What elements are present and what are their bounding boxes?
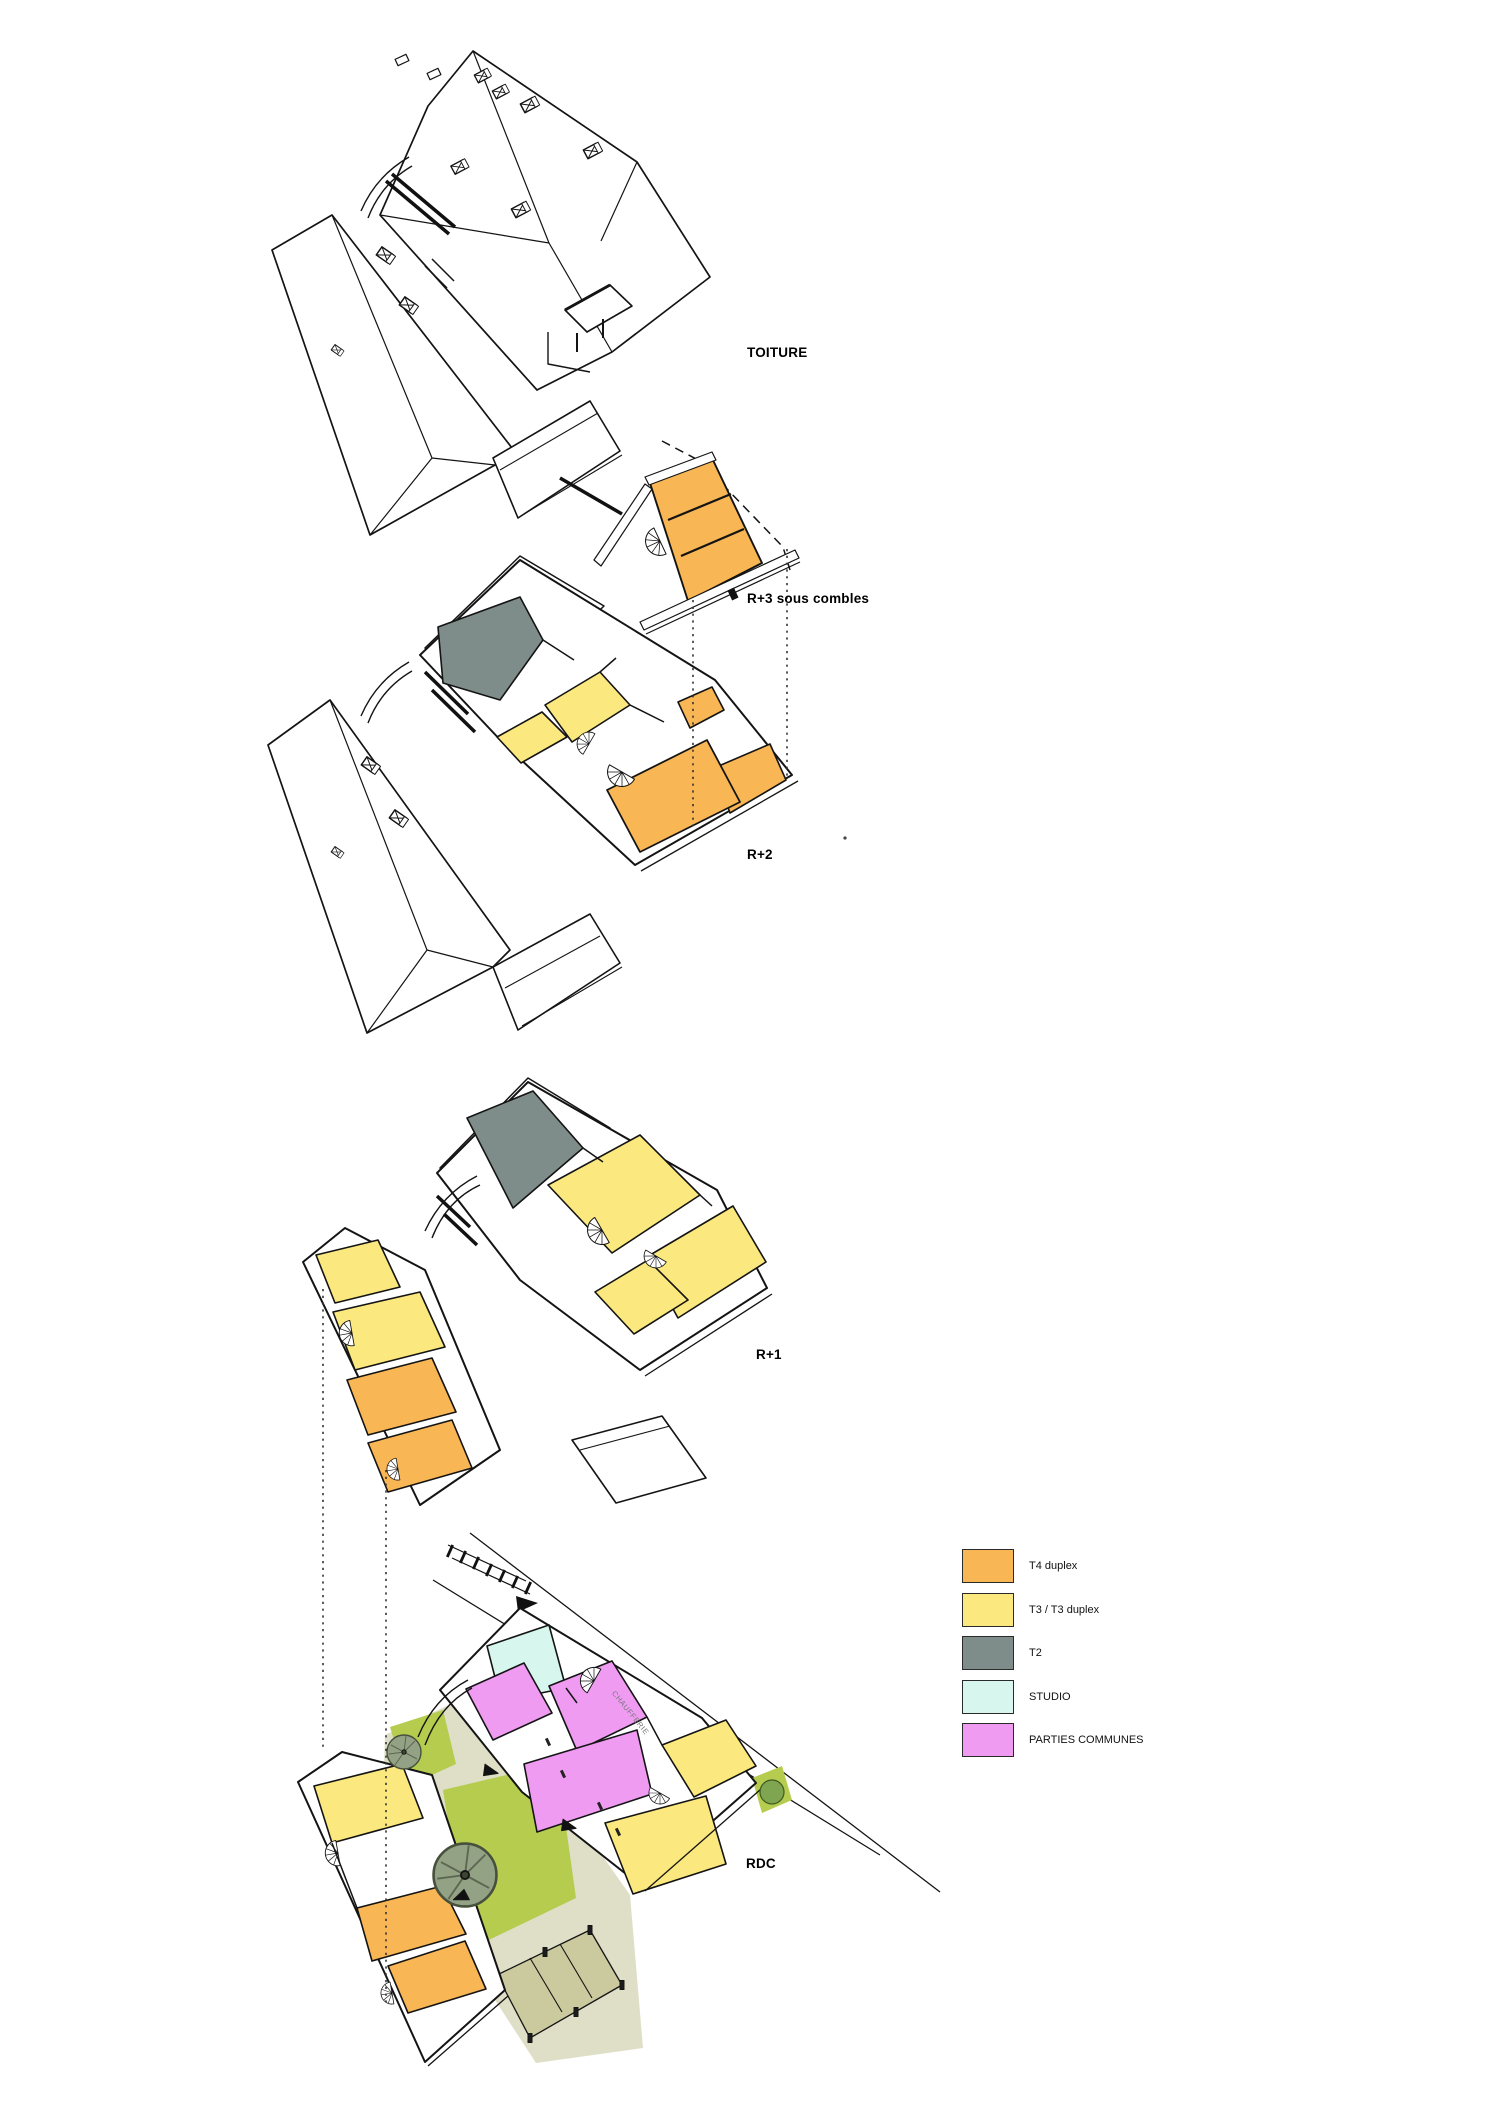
legend: T4 duplex T3 / T3 duplex T2 STUDIO PARTI… bbox=[962, 1549, 1144, 1767]
legend-item-t4-duplex: T4 duplex bbox=[962, 1549, 1144, 1583]
legend-swatch-parties-communes bbox=[962, 1723, 1014, 1757]
label-r1: R+1 bbox=[756, 1347, 782, 1362]
label-r2: R+2 bbox=[747, 847, 773, 862]
label-toiture: TOITURE bbox=[747, 345, 807, 360]
legend-swatch-t4-duplex bbox=[962, 1549, 1014, 1583]
legend-swatch-t2 bbox=[962, 1636, 1014, 1670]
legend-label-t4-duplex: T4 duplex bbox=[1029, 1560, 1077, 1572]
level-rdc-drawing bbox=[298, 1533, 940, 2066]
legend-label-studio: STUDIO bbox=[1029, 1691, 1071, 1703]
legend-label-t3-duplex: T3 / T3 duplex bbox=[1029, 1604, 1099, 1616]
legend-label-parties-communes: PARTIES COMMUNES bbox=[1029, 1734, 1144, 1746]
exploded-axonometric-diagram: TOITURE R+3 sous combles R+2 R+1 RDC CHA… bbox=[0, 0, 1497, 2117]
level-toiture-drawing bbox=[272, 51, 710, 535]
legend-item-parties-communes: PARTIES COMMUNES bbox=[962, 1723, 1144, 1757]
legend-item-t3-duplex: T3 / T3 duplex bbox=[962, 1593, 1144, 1627]
label-rdc: RDC bbox=[746, 1856, 776, 1871]
legend-swatch-studio bbox=[962, 1680, 1014, 1714]
level-r1-drawing bbox=[303, 1078, 772, 1505]
legend-swatch-t3-duplex bbox=[962, 1593, 1014, 1627]
legend-item-t2: T2 bbox=[962, 1636, 1144, 1670]
label-r3: R+3 sous combles bbox=[747, 591, 869, 606]
diagram-drawing bbox=[0, 0, 1497, 2117]
legend-label-t2: T2 bbox=[1029, 1647, 1042, 1659]
legend-item-studio: STUDIO bbox=[962, 1680, 1144, 1714]
